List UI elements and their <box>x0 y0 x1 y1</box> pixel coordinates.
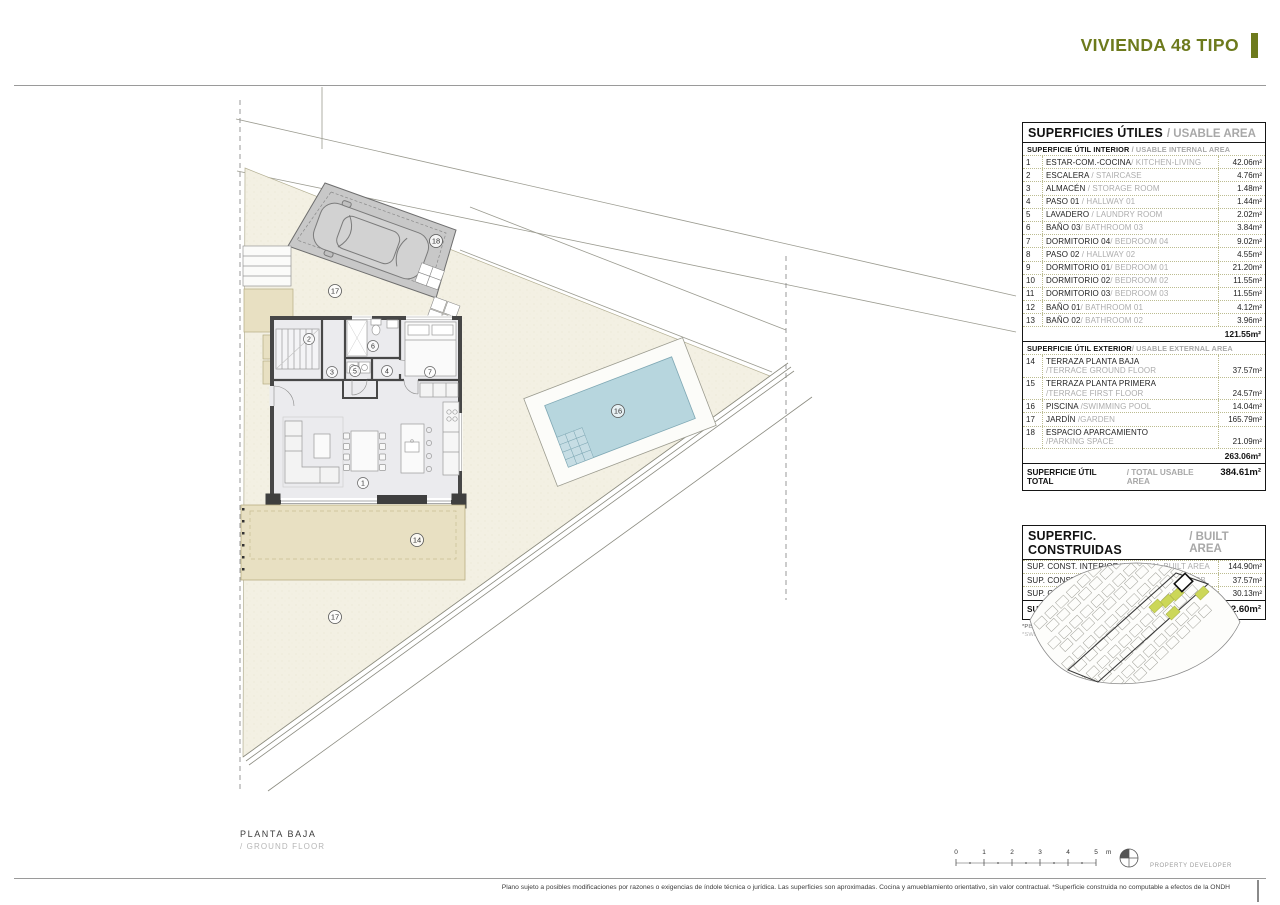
room-area-value: 11.55m² <box>1218 275 1265 287</box>
room-name-es: ALMACÉN <box>1046 184 1085 193</box>
room-name-en: /TERRACE GROUND FLOOR <box>1046 366 1156 375</box>
room-name-es: BAÑO 01 <box>1046 303 1081 312</box>
room-area-value: 21.09m² <box>1218 427 1265 448</box>
room-area-value: 1.44m² <box>1218 196 1265 208</box>
room-name-en: / STORAGE ROOM <box>1085 184 1159 193</box>
row-number: 18 <box>1023 427 1043 448</box>
row-number: 13 <box>1023 314 1043 326</box>
room-name-es: PISCINA <box>1046 402 1078 411</box>
site-map-outline <box>1030 563 1240 684</box>
room-name-es: DORMITORIO 02 <box>1046 276 1110 285</box>
room-area-value: 165.79m² <box>1218 413 1265 425</box>
built-title-en: / BUILT AREA <box>1189 531 1260 555</box>
row-number: 16 <box>1023 400 1043 412</box>
room-name: TERRAZA PLANTA BAJA /TERRACE GROUND FLOO… <box>1043 355 1218 376</box>
room-name-es: ESPACIO APARCAMIENTO <box>1046 428 1148 437</box>
svg-text:3: 3 <box>330 370 334 377</box>
room-name-es: PASO 01 <box>1046 197 1079 206</box>
room-name: JARDÍN /GARDEN <box>1043 413 1218 425</box>
developer-label: PROPERTY DEVELOPER <box>1150 863 1232 869</box>
room-area-value: 37.57m² <box>1218 355 1265 376</box>
plan-caption-es: PLANTA BAJA <box>240 829 325 839</box>
room-name: ESTAR-COM.-COCINA/ KITCHEN-LIVING <box>1043 156 1218 168</box>
svg-text:5: 5 <box>1094 849 1098 856</box>
room-name-es: TERRAZA PLANTA BAJA <box>1046 357 1139 366</box>
row-number: 17 <box>1023 413 1043 425</box>
room-name: DORMITORIO 03/ BEDROOM 03 <box>1043 288 1218 300</box>
usable-interior-row: 1 ESTAR-COM.-COCINA/ KITCHEN-LIVING 42.0… <box>1023 155 1265 168</box>
room-name: ALMACÉN / STORAGE ROOM <box>1043 182 1218 194</box>
room-name-en: /GARDEN <box>1076 415 1115 424</box>
exterior-subtotal: 263.06m² <box>1023 448 1265 463</box>
footer-accent-bar <box>1257 880 1259 902</box>
usable-total-value: 384.61m² <box>1220 467 1261 478</box>
room-name-en: / LAUNDRY ROOM <box>1089 210 1162 219</box>
svg-text:2: 2 <box>1010 849 1014 856</box>
room-name-en: /SWIMMING POOL <box>1078 402 1151 411</box>
svg-text:1: 1 <box>361 481 365 488</box>
svg-text:6: 6 <box>371 344 375 351</box>
svg-text:3: 3 <box>1038 849 1042 856</box>
usable-exterior-row: 16 PISCINA /SWIMMING POOL 14.04m² <box>1023 399 1265 412</box>
room-name-es: LAVADERO <box>1046 210 1089 219</box>
usable-exterior-row: 18 ESPACIO APARCAMIENTO /PARKING SPACE 2… <box>1023 426 1265 448</box>
room-name-es: DORMITORIO 03 <box>1046 289 1110 298</box>
room-name: ESCALERA / STAIRCASE <box>1043 169 1218 181</box>
room-name-en: / BEDROOM 04 <box>1110 237 1168 246</box>
usable-interior-row: 3 ALMACÉN / STORAGE ROOM 1.48m² <box>1023 181 1265 194</box>
room-name-en: / BEDROOM 03 <box>1110 289 1168 298</box>
built-title-es: SUPERFIC. CONSTRUIDAS <box>1028 529 1185 557</box>
room-name: ESPACIO APARCAMIENTO /PARKING SPACE <box>1043 427 1218 448</box>
usable-exterior-row: 15 TERRAZA PLANTA PRIMERA /TERRACE FIRST… <box>1023 377 1265 399</box>
row-number: 8 <box>1023 248 1043 260</box>
plan-label-storage: 3 <box>327 367 338 378</box>
room-name: PASO 02 / HALLWAY 02 <box>1043 248 1218 260</box>
plan-label-terrace: 14 <box>411 534 424 547</box>
plan-label-garden-top: 17 <box>329 285 342 298</box>
room-name-es: BAÑO 03 <box>1046 223 1081 232</box>
room-name-en: / BATHROOM 02 <box>1081 316 1144 325</box>
row-number: 9 <box>1023 262 1043 274</box>
usable-interior-row: 11 DORMITORIO 03/ BEDROOM 03 11.55m² <box>1023 287 1265 300</box>
room-name-en: /TERRACE FIRST FLOOR <box>1046 389 1143 398</box>
usable-title-es: SUPERFICIES ÚTILES <box>1028 126 1163 140</box>
svg-text:5: 5 <box>353 369 357 376</box>
room-name-es: JARDÍN <box>1046 415 1076 424</box>
room-name: PASO 01 / HALLWAY 01 <box>1043 196 1218 208</box>
room-name: PISCINA /SWIMMING POOL <box>1043 400 1218 412</box>
row-number: 14 <box>1023 355 1043 376</box>
scale-unit: m <box>1106 849 1111 856</box>
room-name: BAÑO 01/ BATHROOM 01 <box>1043 301 1218 313</box>
row-number: 10 <box>1023 275 1043 287</box>
svg-text:0: 0 <box>954 849 958 856</box>
exterior-section-label: SUPERFICIE ÚTIL EXTERIOR/ USABLE EXTERNA… <box>1023 341 1265 354</box>
row-number: 1 <box>1023 156 1043 168</box>
site-key-map <box>1024 560 1246 698</box>
svg-text:14: 14 <box>413 536 421 545</box>
plan-sheet: VIVIENDA 48 TIPO <box>0 0 1280 905</box>
row-number: 3 <box>1023 182 1043 194</box>
built-table-header: SUPERFIC. CONSTRUIDAS / BUILT AREA <box>1023 526 1265 560</box>
plan-label-bedroom4: 7 <box>425 367 436 378</box>
terrace <box>241 505 465 580</box>
row-number: 12 <box>1023 301 1043 313</box>
room-name-en: / BATHROOM 03 <box>1081 223 1144 232</box>
room-name: BAÑO 02/ BATHROOM 02 <box>1043 314 1218 326</box>
usable-interior-row: 13 BAÑO 02/ BATHROOM 02 3.96m² <box>1023 313 1265 326</box>
room-name-es: TERRAZA PLANTA PRIMERA <box>1046 379 1156 388</box>
room-area-value: 2.02m² <box>1218 209 1265 221</box>
plan-label-laundry: 5 <box>350 366 361 377</box>
room-area-value: 4.12m² <box>1218 301 1265 313</box>
footer-rule <box>14 878 1266 879</box>
svg-text:17: 17 <box>331 287 339 296</box>
room-area-value: 4.76m² <box>1218 169 1265 181</box>
usable-interior-row: 4 PASO 01 / HALLWAY 01 1.44m² <box>1023 195 1265 208</box>
usable-interior-row: 2 ESCALERA / STAIRCASE 4.76m² <box>1023 168 1265 181</box>
plan-label-garden-bottom: 17 <box>329 611 342 624</box>
plan-label-bathroom3: 6 <box>368 341 379 352</box>
usable-interior-row: 10 DORMITORIO 02/ BEDROOM 02 11.55m² <box>1023 274 1265 287</box>
room-name-es: PASO 02 <box>1046 250 1079 259</box>
row-number: 4 <box>1023 196 1043 208</box>
row-number: 6 <box>1023 222 1043 234</box>
scale-bar: 0 1 2 3 4 5 m <box>954 849 1111 866</box>
room-area-value: 42.06m² <box>1218 156 1265 168</box>
usable-interior-row: 8 PASO 02 / HALLWAY 02 4.55m² <box>1023 247 1265 260</box>
usable-area-table: SUPERFICIES ÚTILES / USABLE AREA SUPERFI… <box>1022 122 1266 491</box>
usable-interior-row: 5 LAVADERO / LAUNDRY ROOM 2.02m² <box>1023 208 1265 221</box>
room-name-es: DORMITORIO 04 <box>1046 237 1110 246</box>
interior-subtotal: 121.55m² <box>1023 326 1265 341</box>
room-area-value: 3.84m² <box>1218 222 1265 234</box>
interior-section-label: SUPERFICIE ÚTIL INTERIOR / USABLE INTERN… <box>1023 143 1265 155</box>
plan-label-staircase: 2 <box>304 334 315 345</box>
usable-table-header: SUPERFICIES ÚTILES / USABLE AREA <box>1023 123 1265 143</box>
room-name-en: / KITCHEN-LIVING <box>1131 158 1201 167</box>
room-name: LAVADERO / LAUNDRY ROOM <box>1043 209 1218 221</box>
row-number: 5 <box>1023 209 1043 221</box>
room-name-en: /PARKING SPACE <box>1046 437 1114 446</box>
compass-icon <box>1120 849 1138 867</box>
usable-interior-row: 6 BAÑO 03/ BATHROOM 03 3.84m² <box>1023 221 1265 234</box>
svg-text:17: 17 <box>331 613 339 622</box>
room-area-value: 21.20m² <box>1218 262 1265 274</box>
room-area-value: 3.96m² <box>1218 314 1265 326</box>
usable-exterior-row: 17 JARDÍN /GARDEN 165.79m² <box>1023 412 1265 425</box>
room-name: DORMITORIO 04/ BEDROOM 04 <box>1043 235 1218 247</box>
room-area-value: 24.57m² <box>1218 378 1265 399</box>
room-name-en: / BATHROOM 01 <box>1081 303 1144 312</box>
row-number: 11 <box>1023 288 1043 300</box>
room-area-value: 4.55m² <box>1218 248 1265 260</box>
room-name: TERRAZA PLANTA PRIMERA /TERRACE FIRST FL… <box>1043 378 1218 399</box>
room-name-en: / BEDROOM 01 <box>1110 263 1168 272</box>
row-number: 7 <box>1023 235 1043 247</box>
plan-label-hallway1: 4 <box>382 366 393 377</box>
room-name: BAÑO 03/ BATHROOM 03 <box>1043 222 1218 234</box>
plan-label-living: 1 <box>358 478 369 489</box>
plan-caption-en: / GROUND FLOOR <box>240 842 325 851</box>
usable-interior-row: 7 DORMITORIO 04/ BEDROOM 04 9.02m² <box>1023 234 1265 247</box>
plan-label-parking: 18 <box>430 235 443 248</box>
room-name-es: ESCALERA <box>1046 171 1089 180</box>
room-area-value: 11.55m² <box>1218 288 1265 300</box>
svg-text:18: 18 <box>432 237 440 246</box>
usable-title-en: / USABLE AREA <box>1167 128 1256 140</box>
svg-text:7: 7 <box>428 370 432 377</box>
room-name-es: ESTAR-COM.-COCINA <box>1046 158 1131 167</box>
svg-text:2: 2 <box>307 337 311 344</box>
entrance-steps <box>243 246 291 286</box>
svg-text:4: 4 <box>385 369 389 376</box>
usable-total-row: SUPERFICIE ÚTIL TOTAL / TOTAL USABLE ARE… <box>1023 463 1265 490</box>
room-name: DORMITORIO 02/ BEDROOM 02 <box>1043 275 1218 287</box>
plan-label-pool: 16 <box>612 405 625 418</box>
room-name-en: / HALLWAY 02 <box>1079 250 1135 259</box>
svg-text:16: 16 <box>614 407 622 416</box>
usable-interior-row: 9 DORMITORIO 01/ BEDROOM 01 21.20m² <box>1023 261 1265 274</box>
room-name-es: BAÑO 02 <box>1046 316 1081 325</box>
room-area-value: 14.04m² <box>1218 400 1265 412</box>
svg-text:4: 4 <box>1066 849 1070 856</box>
usable-interior-row: 12 BAÑO 01/ BATHROOM 01 4.12m² <box>1023 300 1265 313</box>
room-name-es: DORMITORIO 01 <box>1046 263 1110 272</box>
room-area-value: 1.48m² <box>1218 182 1265 194</box>
usable-exterior-row: 14 TERRAZA PLANTA BAJA /TERRACE GROUND F… <box>1023 354 1265 376</box>
row-number: 15 <box>1023 378 1043 399</box>
room-name-en: / BEDROOM 02 <box>1110 276 1168 285</box>
row-number: 2 <box>1023 169 1043 181</box>
svg-text:1: 1 <box>982 849 986 856</box>
room-area-value: 9.02m² <box>1218 235 1265 247</box>
plan-caption: PLANTA BAJA / GROUND FLOOR <box>240 829 325 851</box>
room-name: DORMITORIO 01/ BEDROOM 01 <box>1043 262 1218 274</box>
footer-disclaimer: Plano sujeto a posibles modificaciones p… <box>502 884 1230 891</box>
room-name-en: / HALLWAY 01 <box>1079 197 1135 206</box>
room-name-en: / STAIRCASE <box>1089 171 1142 180</box>
